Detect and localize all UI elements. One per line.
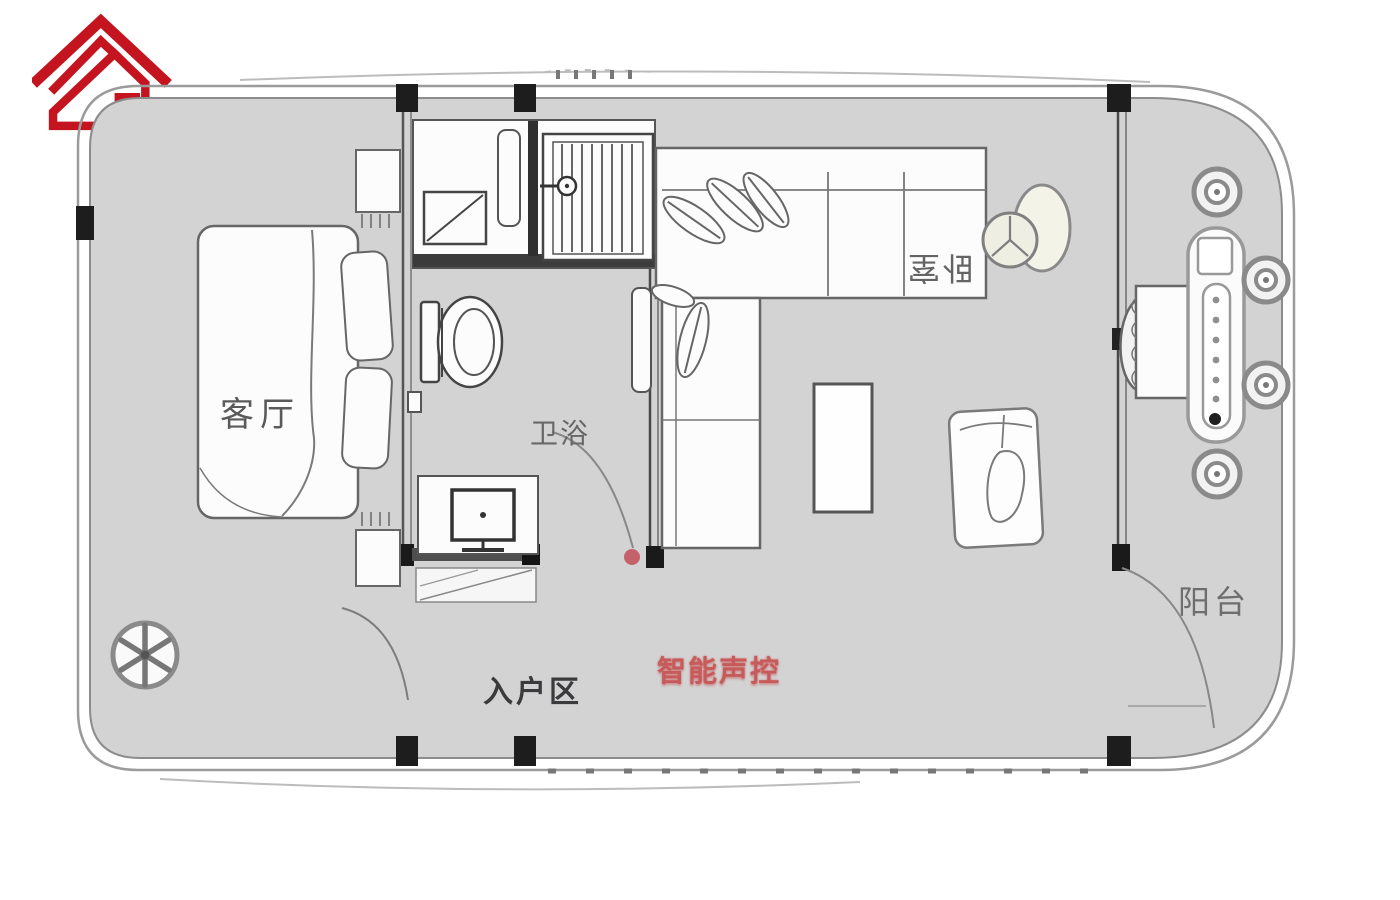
entrance-label: 入户区 (483, 678, 582, 708)
shower (540, 134, 653, 260)
door-stop-red-dot (624, 549, 640, 565)
smart-voice-control-label: 智能声控 (657, 658, 781, 687)
sink-cabinet (424, 192, 486, 244)
shoe-cabinet (416, 568, 536, 602)
toilet-paper-holder (408, 392, 421, 412)
bathroom-divider-wall (528, 121, 538, 256)
bedroom-label: 卧室 (906, 252, 974, 284)
bathroom (413, 120, 655, 268)
stool-ring-icon (1194, 169, 1240, 215)
stool-ring-icon (1244, 363, 1288, 407)
tv-console (418, 476, 538, 554)
living-room-label: 客厅 (220, 398, 300, 432)
coffee-table (814, 384, 872, 512)
floor-plan-drawing (0, 0, 1400, 900)
floor-plan-page: 客厅 卫浴 卧室 入户区 阳台 智能声控 (0, 0, 1400, 900)
stool-ring-icon (1244, 258, 1288, 302)
partition-panel (498, 130, 520, 226)
lounge-chair (949, 408, 1044, 548)
bathroom-label: 卫浴 (530, 420, 590, 448)
bed-pillow (341, 367, 392, 469)
balcony-label: 阳台 (1178, 586, 1250, 618)
bed-pillow (340, 251, 393, 362)
stool-ring-icon (1194, 451, 1240, 497)
sun-lounger (1188, 228, 1244, 442)
floor-drain-icon (113, 623, 177, 687)
tv-icon (452, 490, 514, 550)
